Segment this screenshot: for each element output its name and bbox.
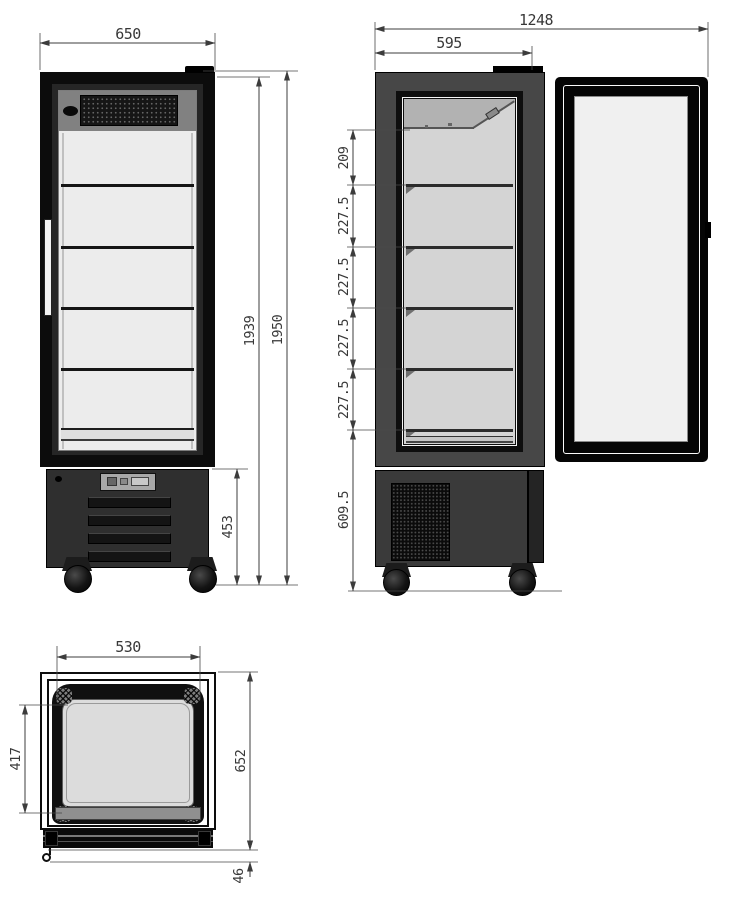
- extension-lines-top: [19, 646, 258, 862]
- dim-front-body-height: 1939: [242, 315, 258, 346]
- dim-side-seg-3: 227.5: [336, 258, 352, 297]
- dim-top-total-depth: 652: [233, 750, 249, 773]
- dim-top-inner-depth: 417: [8, 747, 24, 770]
- dim-front-width: 650: [115, 25, 141, 43]
- dim-side-seg-top: 209: [336, 146, 352, 169]
- dim-side-seg-base: 609.5: [336, 491, 352, 530]
- technical-drawing: 650 453 1939 1950 1248 595 209 227.5 227…: [0, 0, 737, 909]
- dim-side-seg-5: 227.5: [336, 381, 352, 420]
- dim-side-seg-2: 227.5: [336, 197, 352, 236]
- dim-side-seg-4: 227.5: [336, 319, 352, 358]
- extension-lines-side: [347, 22, 708, 591]
- dimension-layer: 650 453 1939 1950 1248 595 209 227.5 227…: [0, 0, 737, 909]
- dim-front-total-height: 1950: [270, 314, 286, 345]
- dim-top-door-offset: 46: [231, 868, 247, 884]
- dim-front-base-height: 453: [220, 515, 236, 538]
- dim-side-overall-depth: 1248: [519, 11, 554, 29]
- dim-top-width: 530: [115, 638, 141, 656]
- dim-side-cabinet-depth: 595: [436, 34, 462, 52]
